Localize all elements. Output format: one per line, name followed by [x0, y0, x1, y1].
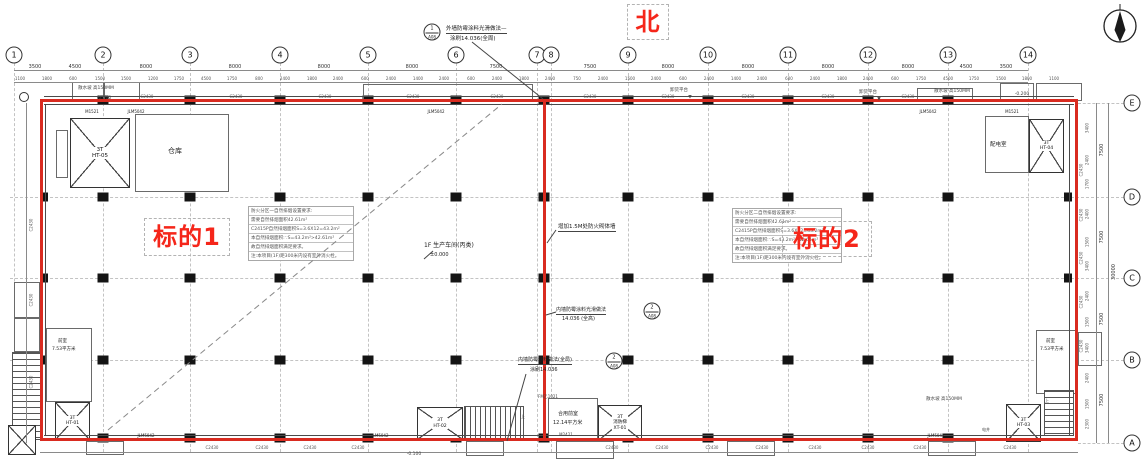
grid-bubble: 12: [860, 47, 877, 64]
elevator-ht05: 3THT-05: [70, 118, 130, 188]
dimension-value: 1750: [174, 76, 184, 81]
grid-bubble: 13: [940, 47, 957, 64]
dimension-value: 600: [69, 76, 77, 81]
callout1-line1: 外墙防霉涂料光滑做法—: [446, 24, 507, 34]
annotation-target1[interactable]: 标的1: [144, 218, 230, 256]
grid-bubble: 8: [543, 47, 560, 64]
dim-line: [1108, 103, 1109, 443]
dimension-value: 2300: [1085, 419, 1090, 429]
dimension-value: 2400: [863, 76, 873, 81]
grid-bubble: E: [1124, 95, 1141, 112]
dimension-value: 2400: [704, 76, 714, 81]
dimension-value: 2400: [1085, 291, 1090, 301]
note-table-zone1: 防火分区一自然排烟设置要求:需要自然排烟面积42.61m²C2415P自然排烟面…: [248, 206, 354, 261]
wall-line: [1069, 104, 1070, 436]
leader-firewall: [547, 230, 556, 243]
note-row: C2415P自然排烟面积S=3.6X12=43.2m²: [249, 225, 353, 234]
north-label: 北: [636, 10, 661, 34]
window-mark: C2430: [1004, 445, 1017, 450]
room-area-shared-lobby: 12.14平方米: [553, 419, 582, 426]
column: [451, 193, 462, 202]
boundary-wall-top: [40, 99, 1078, 102]
porch: [556, 441, 614, 459]
dimension-value: 2400: [439, 76, 449, 81]
grid-bubble: C: [1124, 270, 1141, 287]
window-mark: C2430: [1079, 252, 1084, 265]
callout3-line1: 内墙防霉涂料做法(全局): [518, 356, 572, 365]
dim-line: [40, 452, 1078, 453]
north-compass-icon: [1104, 4, 1136, 42]
elevator-ht03: 3THT-03: [1006, 404, 1041, 442]
porch: [928, 441, 976, 456]
column: [783, 274, 794, 283]
dimension-value: 1500: [1085, 237, 1090, 247]
door-mark: JLM5042: [427, 109, 444, 114]
dimension-value: 7500: [1099, 144, 1105, 157]
grid-line-vertical: [948, 63, 949, 452]
dimension-value: 600: [467, 76, 475, 81]
dimension-value: 7500: [1099, 394, 1105, 407]
grid-bubble: 5: [360, 47, 377, 64]
dimension-value: 2400: [810, 76, 820, 81]
dimension-value: 1800: [519, 76, 529, 81]
column: [863, 356, 874, 365]
callout2-line2: 14.036 (全高): [562, 315, 595, 322]
dimension-value: 7500: [1099, 313, 1105, 326]
dimension-value: 750: [573, 76, 581, 81]
elevator-type: 消防梯: [613, 420, 627, 425]
room-area-lobby-br: 7.53平方米: [1040, 346, 1064, 352]
site-label: 散水坡 高150MM: [926, 396, 962, 402]
grid-line-vertical: [868, 63, 869, 452]
grid-bubble: 11: [780, 47, 797, 64]
room-label-electrical: 配电室: [990, 140, 1007, 148]
micro-mark: 电井: [982, 427, 990, 433]
dimension-value: 600: [785, 76, 793, 81]
dimension-value: 4500: [201, 76, 211, 81]
column: [863, 193, 874, 202]
dimension-value: 2400: [651, 76, 661, 81]
hall-label: 1F 生产车间(丙类): [424, 240, 474, 249]
dim-line: [1096, 103, 1097, 443]
column: [703, 193, 714, 202]
room-label-storage: 仓库: [168, 146, 182, 156]
window-mark: C2430: [1079, 209, 1084, 222]
elevator-id: XT-01: [613, 426, 627, 431]
annotation-north[interactable]: 北: [627, 4, 669, 40]
window-mark: C2430: [1079, 164, 1084, 177]
dimension-value: 1400: [731, 76, 741, 81]
note-row: 本自然排烟面积:∵S=43.2m²>42.61m²: [249, 234, 353, 243]
elevator-id: HT-05: [92, 153, 108, 159]
annex-room: [14, 282, 40, 318]
elevator-id: HT-02: [433, 424, 446, 429]
elevator-ht04: 3THT-04: [1029, 119, 1064, 173]
window-mark: C2430: [256, 445, 269, 450]
detail-sheet: A08: [425, 34, 440, 39]
room-label-lobby-bl: 前室: [58, 338, 67, 344]
dimension-value: 3400: [1085, 261, 1090, 271]
window-mark: C2430: [914, 445, 927, 450]
dimension-value: 8000: [229, 64, 242, 70]
grid-line-vertical: [708, 63, 709, 452]
wall-line: [44, 435, 1074, 436]
dimension-value: 800: [255, 76, 263, 81]
grid-line-vertical: [551, 63, 552, 452]
dimension-value: 1500: [625, 76, 635, 81]
grid-line-vertical: [456, 63, 457, 452]
dimension-value: 600: [891, 76, 899, 81]
dimension-value: 2400: [598, 76, 608, 81]
column: [451, 356, 462, 365]
window-mark: C2430: [304, 445, 317, 450]
wall-line: [45, 104, 46, 436]
grid-bubble: 2: [95, 47, 112, 64]
room-label-lobby-br: 前室: [1046, 338, 1055, 344]
door-mark: M1521: [1005, 109, 1019, 114]
dimension-value: 3500: [1000, 64, 1013, 70]
hall-elevation: ±0.000: [430, 252, 449, 258]
dimension-value: 600: [361, 76, 369, 81]
column: [185, 274, 196, 283]
dimension-value: 1700: [1085, 179, 1090, 189]
room-area-lobby-bl: 7.53平方米: [52, 346, 76, 352]
grid-bubble: 10: [700, 47, 717, 64]
column: [98, 274, 109, 283]
dimension-value: 600: [679, 76, 687, 81]
shaft-bl: [8, 425, 36, 455]
note-row: 防火分区一自然排烟设置要求:: [249, 207, 353, 216]
column-edge: [1064, 193, 1072, 202]
dimension-total: 30000: [1111, 264, 1117, 280]
column: [185, 193, 196, 202]
room-storage: [135, 114, 229, 192]
note-row: 故自然排烟面积满足要求。: [249, 243, 353, 252]
column: [451, 274, 462, 283]
dim-line: [26, 103, 27, 443]
column: [703, 356, 714, 365]
boundary-wall-left: [40, 99, 43, 441]
column: [98, 193, 109, 202]
detail-sheet: A08: [607, 363, 622, 368]
target2-label: 标的2: [793, 227, 861, 251]
dimension-value: 1500: [121, 76, 131, 81]
site-label: 卸货平台: [670, 87, 688, 93]
column: [943, 356, 954, 365]
column: [275, 274, 286, 283]
detail-number: 2: [645, 305, 660, 311]
detail-number: 2: [607, 355, 622, 361]
column: [783, 356, 794, 365]
dimension-value: 8000: [822, 64, 835, 70]
grid-line-horizontal: [10, 278, 1124, 279]
column: [363, 356, 374, 365]
dimension-value: 1500: [1085, 317, 1090, 327]
grid-bubble-small: [19, 92, 29, 102]
dimension-value: 1800: [837, 76, 847, 81]
grid-bubble: 7: [529, 47, 546, 64]
dimension-value: 3500: [29, 64, 42, 70]
grid-bubble: 1: [6, 47, 23, 64]
detail-bubble-2: 2 A08: [644, 303, 661, 320]
grid-bubble: 3: [182, 47, 199, 64]
boundary-wall-bottom: [40, 438, 1078, 441]
grid-bubble: 4: [272, 47, 289, 64]
note-row: 防火分区二自然排烟设置要求:: [733, 209, 841, 218]
dimension-value: 2400: [492, 76, 502, 81]
room-lobby-br: [1036, 330, 1076, 394]
annex-room: [14, 318, 40, 352]
column: [703, 274, 714, 283]
callout2-line1: 内墙防霉涂料光滑做法: [556, 306, 606, 315]
window-mark: C2430: [206, 445, 219, 450]
dimension-value: 8000: [742, 64, 755, 70]
dimension-value: 4500: [960, 64, 973, 70]
dimension-value: 2400: [386, 76, 396, 81]
grid-bubble: A: [1124, 435, 1141, 452]
dimension-value: 1400: [413, 76, 423, 81]
dimension-value: 3400: [1085, 123, 1090, 133]
column: [783, 193, 794, 202]
grid-line-horizontal: [1078, 103, 1124, 104]
detail-sheet: A08: [645, 313, 660, 318]
grid-bubble: D: [1124, 189, 1141, 206]
dimension-value: 8000: [902, 64, 915, 70]
dimension-value: 1800: [1022, 76, 1032, 81]
column: [863, 274, 874, 283]
grid-line-vertical: [628, 63, 629, 452]
dimension-value: 7500: [1099, 231, 1105, 244]
window-mark: C2430: [862, 445, 875, 450]
dimension-value: 4500: [69, 64, 82, 70]
dimension-value: 2400: [280, 76, 290, 81]
window-mark: C2430: [29, 219, 34, 232]
dimension-value: 2400: [545, 76, 555, 81]
dimension-value: 1800: [42, 76, 52, 81]
window-mark: C2430: [656, 445, 669, 450]
dimension-value: 2400: [757, 76, 767, 81]
column: [98, 356, 109, 365]
dimension-value: 1500: [1085, 399, 1090, 409]
grid-line-horizontal: [1078, 443, 1124, 444]
dim-line: [14, 82, 1028, 83]
dimension-value: 1800: [307, 76, 317, 81]
annex-room: [1078, 332, 1102, 366]
dimension-value: 1500: [996, 76, 1006, 81]
wall-line: [44, 104, 1074, 105]
grid-bubble: B: [1124, 352, 1141, 369]
target1-label: 标的1: [153, 225, 221, 249]
dim-line: [14, 70, 1028, 71]
dimension-value: 8000: [140, 64, 153, 70]
column: [363, 193, 374, 202]
firewall-note: 增加1.5M处防火砌体墙: [558, 222, 616, 232]
column: [275, 356, 286, 365]
dimension-value: 8000: [318, 64, 331, 70]
dimension-value: 1750: [969, 76, 979, 81]
dimension-value: 1100: [1049, 76, 1059, 81]
grid-bubble: 14: [1020, 47, 1037, 64]
shaft: [56, 130, 68, 178]
note-row: 需要自然排烟面积42.61m²: [249, 216, 353, 225]
column: [363, 274, 374, 283]
detail-number: 1: [425, 26, 440, 32]
annotation-target2[interactable]: 标的2: [782, 221, 872, 257]
dimension-value: 2400: [1085, 209, 1090, 219]
column: [185, 356, 196, 365]
dimension-value: 2400: [333, 76, 343, 81]
dimension-value: 2400: [1085, 155, 1090, 165]
grid-line-vertical: [537, 63, 538, 452]
wall-line: [44, 96, 1074, 97]
column: [623, 356, 634, 365]
porch: [466, 441, 504, 456]
elevator-id: HT-01: [66, 421, 79, 426]
room-label-shared-lobby: 合用前室: [558, 410, 578, 417]
elevator-id: HT-04: [1040, 146, 1053, 151]
dimension-value: 7500: [490, 64, 503, 70]
dimension-value: 8000: [406, 64, 419, 70]
floor-plan-canvas: 3THT-05 3THT-04 3THT-01 3THT-02 3T消防梯XT-…: [0, 0, 1143, 461]
elevator-id: HT-03: [1017, 423, 1030, 428]
column: [275, 193, 286, 202]
room-lobby-bl: [46, 328, 92, 402]
site-label: 卸货平台: [859, 89, 877, 95]
dimension-value: 2400: [1085, 373, 1090, 383]
dimension-value: 1100: [15, 76, 25, 81]
detail-bubble-1: 1 A08: [424, 24, 441, 41]
column: [943, 193, 954, 202]
window-mark: C2430: [809, 445, 822, 450]
column: [623, 274, 634, 283]
column: [623, 193, 634, 202]
column: [943, 274, 954, 283]
dimension-value: 4500: [943, 76, 953, 81]
dimension-value: 8000: [662, 64, 675, 70]
dimension-value: 1200: [148, 76, 158, 81]
leader-callout2: [546, 312, 556, 315]
door-mark: JLM5042: [919, 109, 936, 114]
door-mark: M1521: [85, 109, 99, 114]
dimension-value: 7500: [584, 64, 597, 70]
window-mark: C2430: [352, 445, 365, 450]
window-mark: C2430: [1079, 296, 1084, 309]
grid-line-horizontal: [10, 197, 1124, 198]
dimension-value: 1750: [227, 76, 237, 81]
dimension-value: 1750: [916, 76, 926, 81]
callout1-line2: 涂刷14.036(全周): [450, 34, 496, 42]
column-edge: [1064, 274, 1072, 283]
boundary-wall-right: [1075, 99, 1078, 441]
note-row: 注:本项目(1F)距300米内设有室外消火栓。: [249, 252, 353, 260]
callout3-line2: 涂刷14.036: [530, 366, 558, 373]
firewall-divider: [543, 99, 546, 441]
grid-bubble: 6: [448, 47, 465, 64]
grid-line-vertical: [368, 63, 369, 452]
porch: [727, 441, 775, 456]
detail-bubble-3: 2 A08: [606, 353, 623, 370]
dimension-value: 1500: [95, 76, 105, 81]
window-mark: C2430: [706, 445, 719, 450]
grid-bubble: 9: [620, 47, 637, 64]
